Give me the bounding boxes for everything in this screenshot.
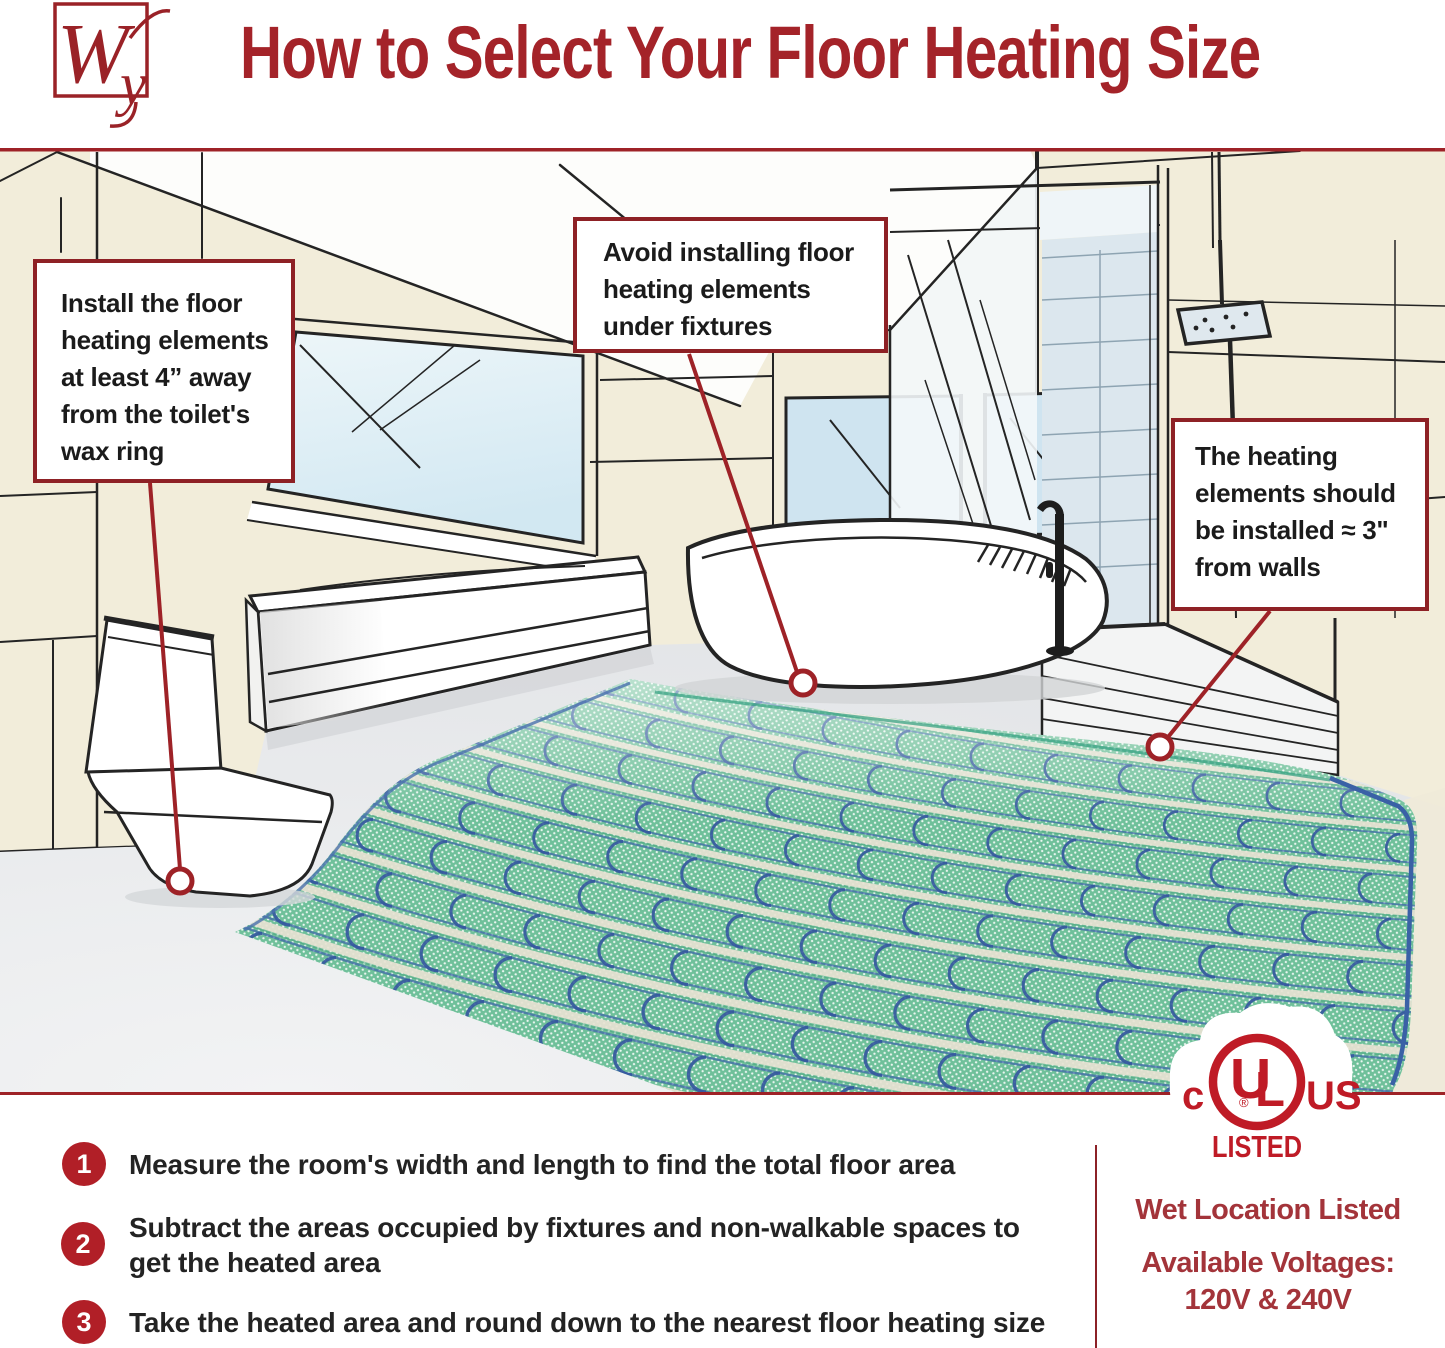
svg-text:LISTED: LISTED	[1212, 1129, 1302, 1164]
svg-text:US: US	[1306, 1074, 1362, 1118]
svg-text:c: c	[1182, 1074, 1204, 1118]
svg-text:®: ®	[1239, 1095, 1249, 1110]
svg-text:L: L	[1255, 1063, 1285, 1117]
